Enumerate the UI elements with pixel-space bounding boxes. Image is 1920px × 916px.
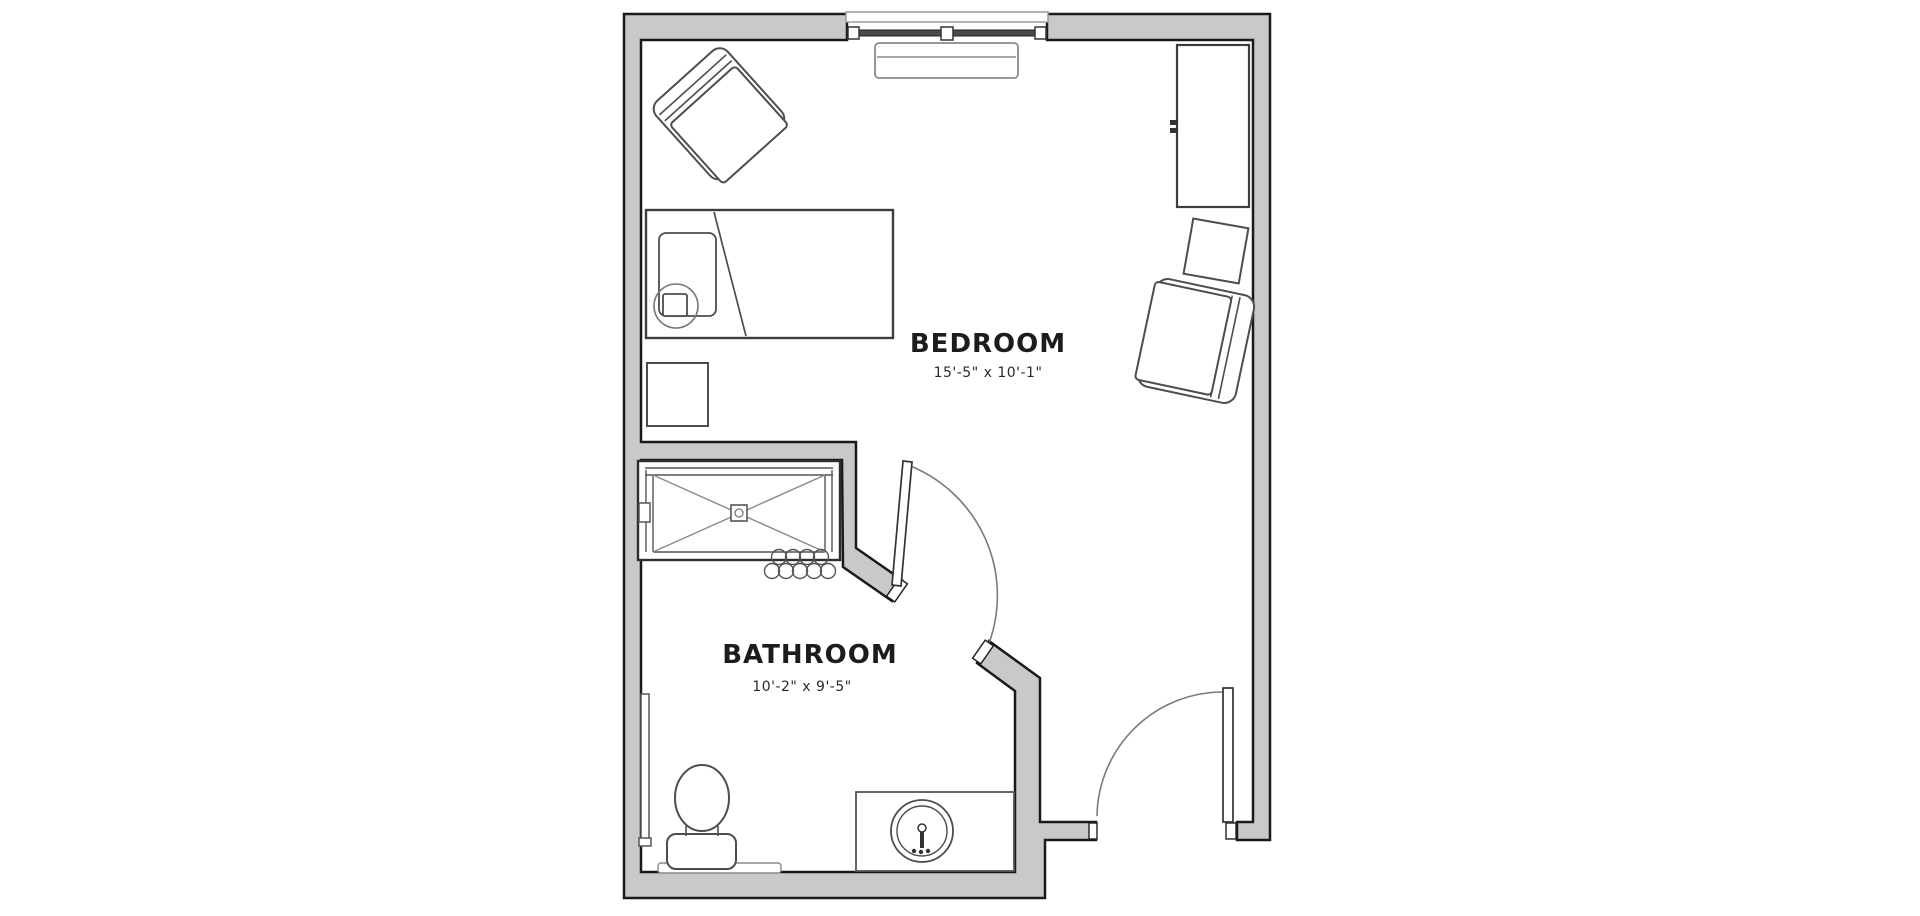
window-mullion [941,27,953,40]
entry-door [1089,688,1236,839]
bedroom-label: BEDROOM [910,329,1066,359]
armchair [1134,276,1257,405]
toilet-bowl [675,765,729,831]
side-table [1184,219,1249,284]
wardrobe-handle-bottom [1170,128,1178,133]
console-table [875,43,1018,78]
bathroom-label: BATHROOM [722,640,898,670]
bathroom-door [887,461,998,664]
lounge-chair [649,44,791,187]
bathroom-label-group: BATHROOM 10'-2" x 9'-5" [722,640,898,695]
entry-door-swing-arc [1097,692,1223,816]
floor-plan-svg: BEDROOM 15'-5" x 10'-1" BATHROOM 10'-2" … [0,0,1920,916]
window [846,12,1048,40]
window-end-cap-right [1035,27,1046,39]
bathroom-dimensions: 10'-2" x 9'-5" [752,679,851,695]
entry-door-jamb-right [1226,823,1236,839]
window-sill [846,12,1048,22]
bed-accessory-square [663,294,687,316]
floor-plan: BEDROOM 15'-5" x 10'-1" BATHROOM 10'-2" … [0,0,1920,916]
toilet-tank [667,834,736,869]
toilet [658,765,781,873]
entry-door-jamb-left [1089,823,1097,839]
wardrobe [1170,45,1249,207]
wardrobe-handle-top [1170,120,1178,125]
bedroom-dimensions: 15'-5" x 10'-1" [934,365,1043,381]
shower [638,461,840,560]
shower-valve [639,503,650,522]
bed [646,210,893,338]
nightstand [647,363,708,426]
shower-drain [731,505,747,521]
window-end-cap-left [848,27,859,39]
bathroom-door-swing-arc [908,465,997,646]
bathroom-door-leaf [892,461,912,586]
entry-door-leaf [1223,688,1233,822]
vanity [856,792,1014,871]
bedroom-label-group: BEDROOM 15'-5" x 10'-1" [910,329,1066,381]
grab-bar [639,694,651,846]
